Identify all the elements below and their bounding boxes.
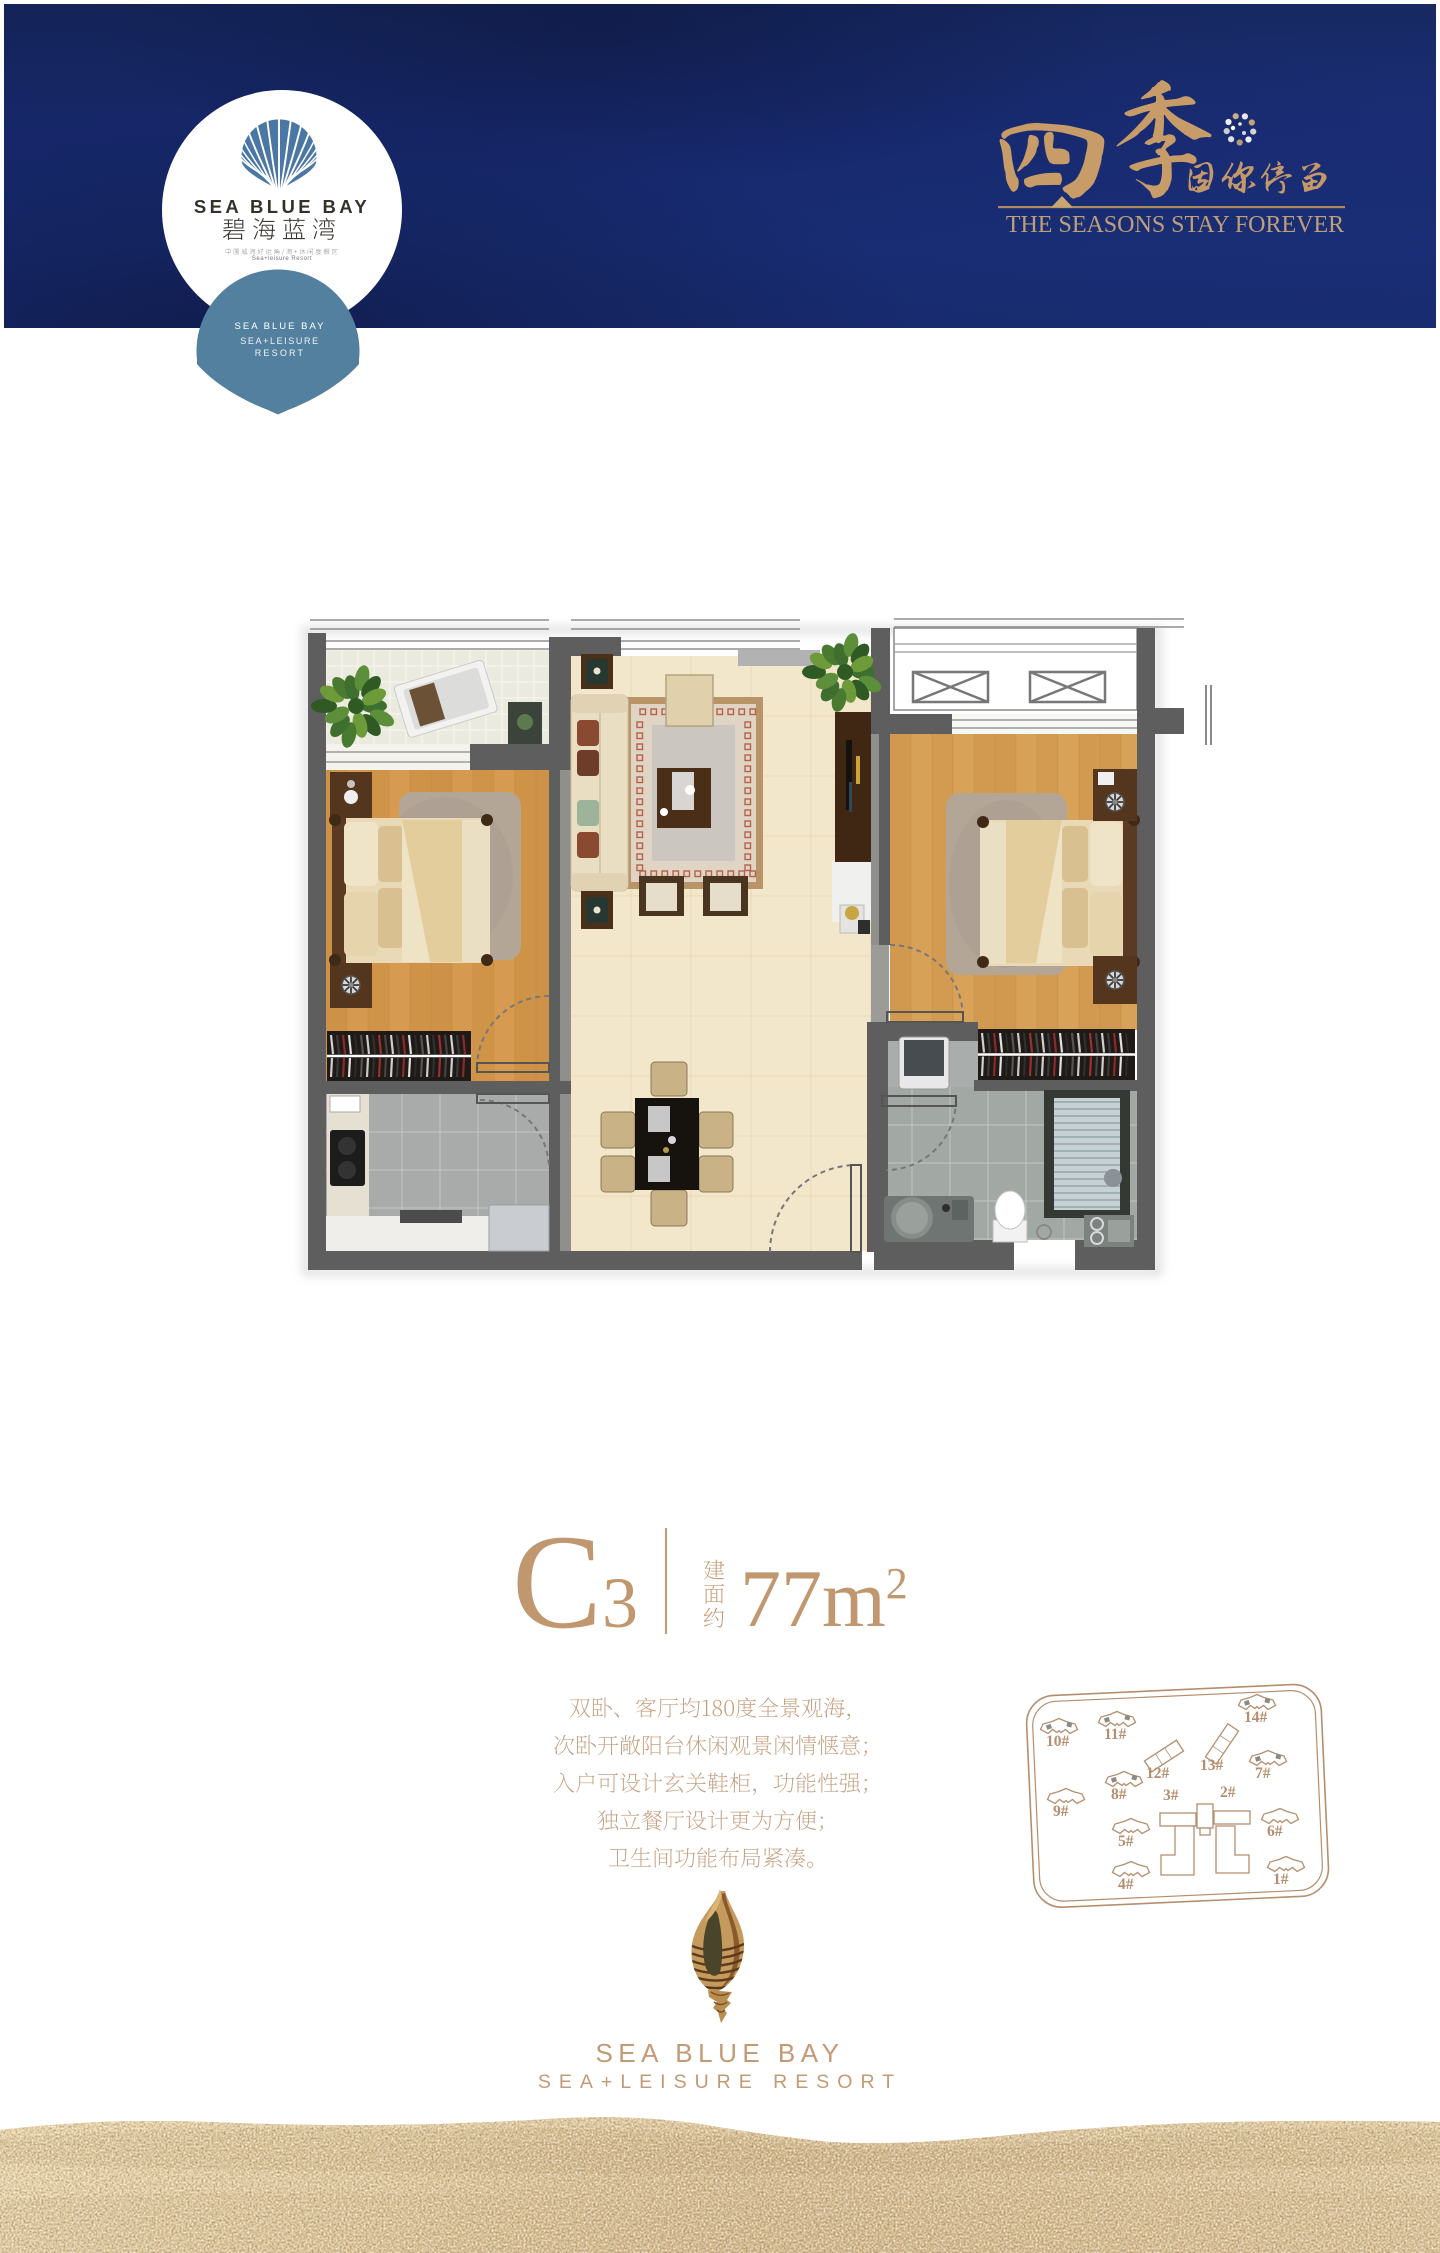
svg-text:12#: 12# — [1146, 1765, 1170, 1782]
svg-text:13#: 13# — [1200, 1757, 1224, 1774]
svg-text:6#: 6# — [1267, 1823, 1283, 1840]
svg-text:10#: 10# — [1046, 1733, 1070, 1750]
svg-text:2#: 2# — [1220, 1784, 1236, 1801]
svg-text:5#: 5# — [1118, 1833, 1134, 1850]
svg-text:11#: 11# — [1104, 1726, 1127, 1743]
svg-text:8#: 8# — [1111, 1786, 1127, 1803]
svg-text:14#: 14# — [1244, 1709, 1268, 1726]
svg-text:4#: 4# — [1118, 1876, 1134, 1893]
svg-text:7#: 7# — [1255, 1765, 1271, 1782]
svg-text:9#: 9# — [1053, 1803, 1069, 1820]
svg-text:1#: 1# — [1273, 1871, 1289, 1888]
svg-text:3#: 3# — [1163, 1787, 1179, 1804]
